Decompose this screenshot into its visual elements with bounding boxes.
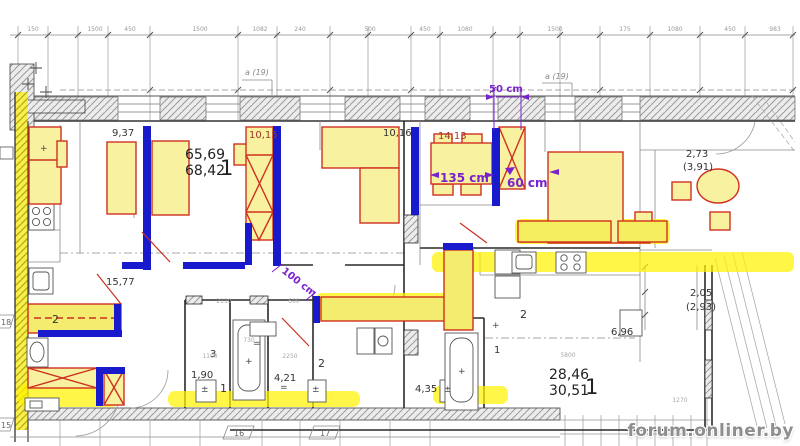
cabinet-top-left [29,127,61,204]
dim-number: 1080 [667,26,682,33]
side-table-1 [234,144,247,165]
room-area-205: 2,05 [690,288,712,299]
sink-2 [250,322,276,336]
round-table [697,169,739,203]
dim-number: 600 [288,298,300,305]
washer-2 [375,328,392,354]
dim-60cm: 60 cm [507,176,548,190]
living-area-2: 30,51 [549,383,589,399]
bottom-wall [10,408,560,446]
dim-number: 5800 [560,352,575,359]
crossed-box-small [104,370,124,405]
dim-135cm: 135 cm [440,171,489,185]
dim-50cm: 50 cm [489,84,523,95]
tag-18: 18 [1,318,11,327]
dim-number: 983 [769,26,781,33]
dim-number: 1500 [192,26,207,33]
dim-number: 500 [364,26,376,33]
dim-number: 1082 [252,26,267,33]
room-area-391: (3,91) [683,162,713,173]
dim-number: 1500 [87,26,102,33]
room-area-1015: 10,15 [249,130,278,141]
kitchen-counter-right [444,250,473,330]
stove-left [29,204,54,230]
dim-number: 175 [619,26,631,33]
room-area-293: (2,93) [686,302,716,313]
room-area-937: 9,37 [112,128,134,139]
dim-number: 2110 [216,298,231,305]
washer-1 [357,328,374,354]
pm-toilet1: ± [201,385,209,395]
bed-2 [152,141,189,215]
stove-right [556,252,586,273]
corridor-counter [321,297,447,321]
axis-label-left: a (19) [245,68,269,77]
bed-3-side [360,168,399,223]
dim-number: 1270 [672,397,687,404]
dim-number: 1080 [457,26,472,33]
bath1-number: 1 [220,382,227,395]
dim-number: 240 [294,26,306,33]
eq-bath: = [280,383,288,393]
room-area-696: 6,96 [611,327,633,338]
dim-number: 150 [27,26,39,33]
dining-set [431,134,492,195]
dim-number: 450 [419,26,431,33]
balcony-stool-2 [710,212,730,230]
dim-number: 450 [724,26,736,33]
room-area-1413: 14,13 [438,131,467,142]
plan-drawing: 9,37 65,69 68,42 1 10,15 10,16 14,13 15,… [0,0,800,446]
living-area-1: 28,46 [549,367,589,383]
bed-1 [107,142,136,214]
room-area-1577: 15,77 [106,277,135,288]
watermark: forum.onliner.by [628,421,794,441]
room-area-190: 1,90 [191,370,213,381]
door-swing-lines [97,223,487,346]
floor-plan: 9,37 65,69 68,42 1 10,15 10,16 14,13 15,… [0,0,800,446]
room-area-1016: 10,16 [383,128,412,139]
plus-kitchen: + [492,321,500,331]
counter-number: 2 [52,313,59,326]
top-dimension-numbers: 150 1500 450 1500 1082 240 500 450 1080 … [27,26,781,33]
dim-number: 2250 [282,353,297,360]
dim-number: 450 [124,26,136,33]
dim-number: 730 [243,337,255,344]
plus-tub2: + [458,367,466,377]
kitchen-counter-left [28,304,121,333]
dim-number: 1500 [547,26,562,33]
apartment2-number: 1 [585,375,598,399]
dim-number: 1100 [202,353,217,360]
pm-toilet2: ± [312,385,320,395]
kitchen-top-b [618,221,667,242]
dim-100cm: 100 cm [279,266,318,300]
room-area-435: 4,35 [415,384,437,395]
tag-17: 17 [320,429,330,438]
plus-cabinet: + [40,144,48,154]
tag-16: 16 [234,429,244,438]
bath2-number: 2 [318,357,325,370]
balcony-stool-1 [672,182,691,200]
kitchen2-number: 2 [520,308,527,321]
tag-15: 15 [1,421,11,430]
plus-tub1: + [245,357,253,367]
crossed-box-long [28,368,97,388]
pm-toilet3: ± [444,385,452,395]
room-area-273: 2,73 [686,149,708,160]
axis-label-right: a (19) [545,72,569,81]
hall1-number: 1 [494,345,500,356]
apartment-number: 1 [220,156,233,180]
shelf-small [57,141,67,167]
kitchen-top-a [518,221,611,242]
